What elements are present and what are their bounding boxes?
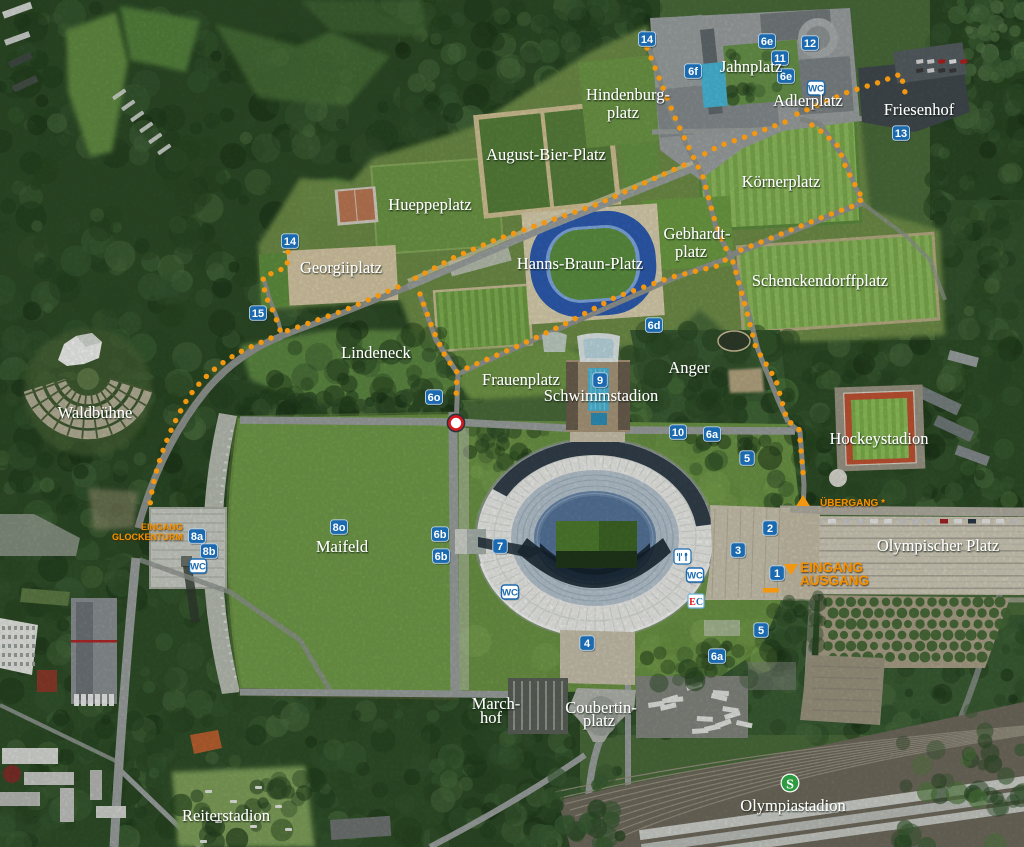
svg-text:Reiterstadion: Reiterstadion — [182, 806, 270, 825]
svg-text:Gebhardt-: Gebhardt- — [664, 224, 731, 243]
svg-text:WC: WC — [502, 587, 518, 598]
svg-text:Hockeystadion: Hockeystadion — [830, 429, 929, 448]
svg-text:8a: 8a — [191, 531, 204, 543]
svg-text:Lindeneck: Lindeneck — [341, 343, 411, 362]
svg-text:1: 1 — [774, 568, 780, 580]
svg-text:3: 3 — [735, 545, 741, 557]
svg-text:12: 12 — [804, 38, 816, 50]
svg-text:10: 10 — [672, 427, 684, 439]
svg-text:4: 4 — [584, 638, 591, 650]
svg-text:platz: platz — [583, 711, 615, 730]
svg-text:15: 15 — [252, 308, 264, 320]
svg-text:Georgiiplatz: Georgiiplatz — [300, 258, 382, 277]
svg-text:hof: hof — [480, 708, 503, 727]
svg-text:Schwimmstadion: Schwimmstadion — [544, 386, 659, 405]
svg-text:Olympiastadion: Olympiastadion — [740, 796, 845, 815]
svg-text:EINGANG: EINGANG — [141, 522, 183, 532]
svg-text:C: C — [696, 597, 703, 608]
svg-text:5: 5 — [744, 453, 750, 465]
svg-text:ÜBERGANG *: ÜBERGANG * — [820, 496, 885, 509]
svg-text:Maifeld: Maifeld — [316, 537, 369, 556]
svg-text:6o: 6o — [428, 392, 441, 404]
svg-text:5: 5 — [758, 625, 764, 637]
svg-text:6a: 6a — [706, 429, 719, 441]
svg-text:WC: WC — [190, 561, 206, 572]
svg-text:6d: 6d — [648, 320, 661, 332]
svg-text:S: S — [786, 778, 794, 793]
svg-text:14: 14 — [284, 236, 297, 248]
svg-text:6b: 6b — [435, 551, 448, 563]
svg-text:8b: 8b — [203, 546, 216, 558]
svg-text:WC: WC — [687, 570, 703, 581]
svg-text:9: 9 — [597, 375, 603, 387]
svg-text:Adlerplatz: Adlerplatz — [773, 91, 843, 110]
svg-text:AUSGANG: AUSGANG — [800, 573, 869, 588]
svg-text:6f: 6f — [688, 66, 698, 78]
svg-text:GLOCKENTURM: GLOCKENTURM — [112, 532, 183, 542]
svg-text:Körnerplatz: Körnerplatz — [742, 172, 821, 191]
svg-text:6a: 6a — [711, 651, 724, 663]
svg-text:Anger: Anger — [668, 358, 710, 377]
svg-text:8o: 8o — [333, 522, 346, 534]
svg-text:6e: 6e — [761, 36, 773, 48]
svg-text:platz: platz — [607, 103, 639, 122]
svg-text:14: 14 — [641, 34, 654, 46]
svg-text:2: 2 — [767, 523, 773, 535]
svg-text:7: 7 — [497, 541, 503, 553]
svg-text:Jahnplatz: Jahnplatz — [720, 57, 782, 76]
svg-text:Friesenhof: Friesenhof — [884, 100, 955, 119]
svg-text:Hindenburg-: Hindenburg- — [586, 85, 670, 104]
svg-text:Hueppeplatz: Hueppeplatz — [388, 195, 471, 214]
svg-text:6b: 6b — [434, 529, 447, 541]
svg-text:13: 13 — [895, 128, 907, 140]
svg-text:Olympischer Platz: Olympischer Platz — [877, 536, 999, 555]
svg-text:platz: platz — [675, 242, 707, 261]
svg-text:August-Bier-Platz: August-Bier-Platz — [486, 145, 606, 164]
svg-text:Waldbühne: Waldbühne — [58, 403, 133, 422]
svg-text:Hanns-Braun-Platz: Hanns-Braun-Platz — [517, 254, 643, 273]
svg-text:Schenckendorffplatz: Schenckendorffplatz — [752, 271, 888, 290]
